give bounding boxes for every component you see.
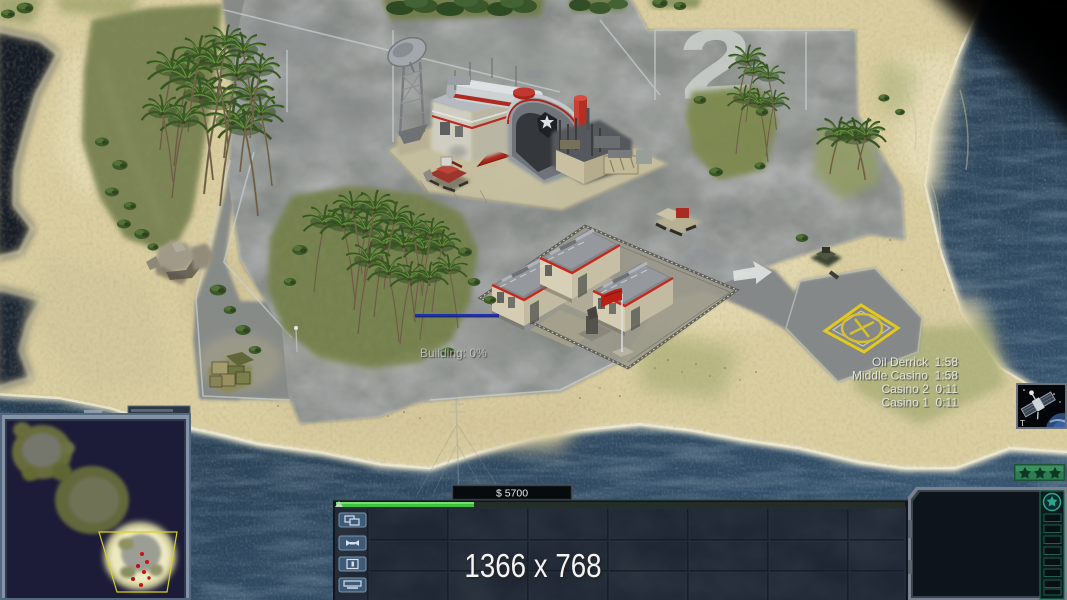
- svg-text:Middle Casino 1:58: Middle Casino 1:58: [852, 369, 958, 383]
- svg-text:$ 5700: $ 5700: [496, 488, 528, 500]
- svg-text:Oil Derrick 1:58: Oil Derrick 1:58: [872, 355, 958, 369]
- svg-text:T: T: [1020, 419, 1025, 428]
- svg-text:Building: 0%: Building: 0%: [420, 346, 487, 360]
- svg-text:Casino 2 0:11: Casino 2 0:11: [882, 382, 959, 396]
- svg-text:1366 x 768: 1366 x 768: [464, 548, 601, 585]
- svg-text:Casino 1 0:11: Casino 1 0:11: [882, 396, 959, 410]
